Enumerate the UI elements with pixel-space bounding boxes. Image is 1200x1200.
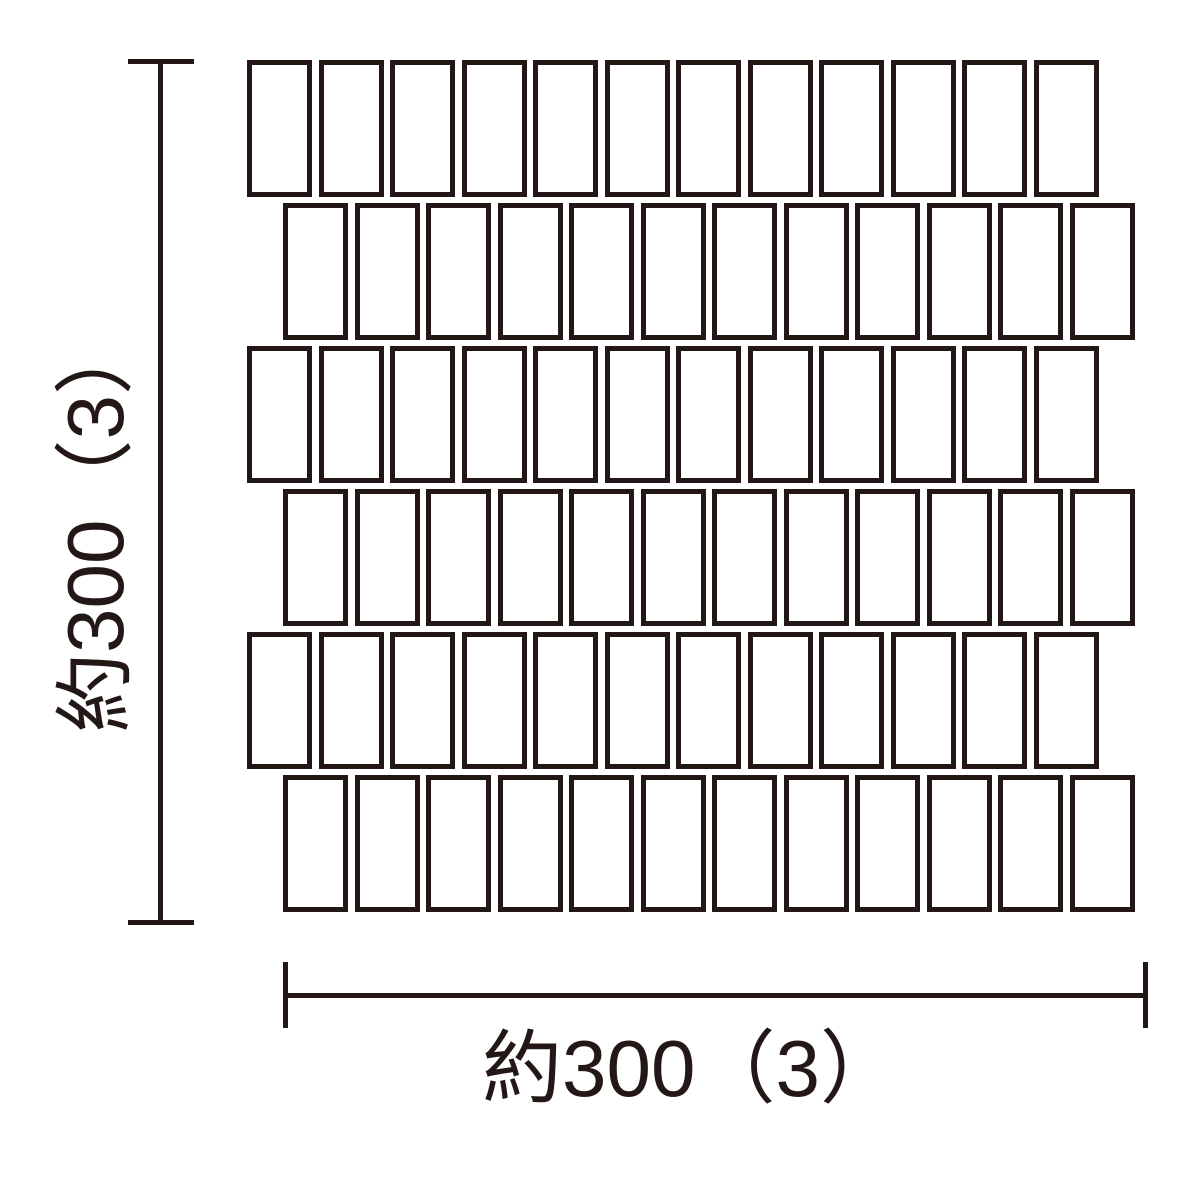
tile [247,346,312,483]
tile [390,346,455,483]
tile [641,775,706,912]
tile [605,60,670,197]
tile [855,775,920,912]
tile [712,775,777,912]
tile [569,203,634,340]
tile [283,203,348,340]
tile [712,203,777,340]
tile [819,346,884,483]
tile [819,60,884,197]
tile [962,346,1027,483]
tile [998,203,1063,340]
tile [569,775,634,912]
diagram-canvas: 約300（3） 約300（3） [0,0,1200,1200]
tile [962,632,1027,769]
tile [355,775,420,912]
tile [641,203,706,340]
tile [855,489,920,626]
tile [605,346,670,483]
tile [641,489,706,626]
vertical-dimension-line [158,59,163,925]
tile [533,60,598,197]
tile [319,346,384,483]
tile [748,60,813,197]
tile [784,203,849,340]
tile [498,775,563,912]
tile [1070,203,1135,340]
tile [998,775,1063,912]
tile [462,346,527,483]
tile [462,632,527,769]
tile [855,203,920,340]
tile [712,489,777,626]
tile [927,489,992,626]
tile [605,632,670,769]
tile [819,632,884,769]
tile [1034,346,1099,483]
tile [498,489,563,626]
tile [676,60,741,197]
tile [569,489,634,626]
vertical-dimension-cap-bottom [128,920,194,925]
tile [891,632,956,769]
tile [962,60,1027,197]
height-dimension-label: 約300（3） [46,274,146,774]
tile [891,60,956,197]
tile [533,346,598,483]
tile [1070,775,1135,912]
tile [498,203,563,340]
horizontal-dimension-tick-right [1143,962,1148,1028]
width-dimension-label: 約300（3） [441,1019,941,1119]
tile [319,60,384,197]
tile [927,203,992,340]
tile [891,346,956,483]
tile [748,346,813,483]
tile [927,775,992,912]
horizontal-dimension-tick-left [283,962,288,1028]
tile [355,203,420,340]
tile [319,632,384,769]
tile [247,632,312,769]
tile [998,489,1063,626]
tile [676,632,741,769]
tile [426,489,491,626]
tile [355,489,420,626]
tile [390,632,455,769]
tile [784,489,849,626]
horizontal-dimension-line [285,993,1148,998]
vertical-dimension-cap-top [128,59,194,64]
tile [784,775,849,912]
tile [426,203,491,340]
tile [247,60,312,197]
tile [390,60,455,197]
tile [283,775,348,912]
tile [462,60,527,197]
tile [676,346,741,483]
tile [283,489,348,626]
tile [533,632,598,769]
tile [1034,60,1099,197]
tile [426,775,491,912]
tile [1070,489,1135,626]
tile [748,632,813,769]
tile [1034,632,1099,769]
